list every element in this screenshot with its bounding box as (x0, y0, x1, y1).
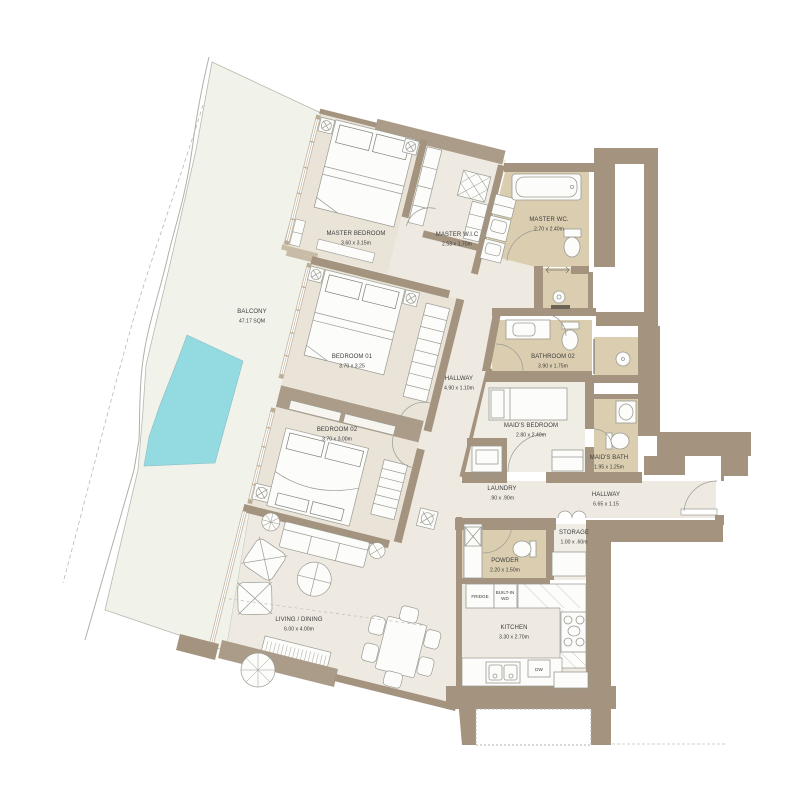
svg-text:3.60 x 3.15m: 3.60 x 3.15m (341, 241, 371, 247)
svg-text:BEDROOM 01: BEDROOM 01 (332, 354, 373, 360)
svg-text:HALLWAY: HALLWAY (445, 376, 473, 382)
svg-text:6.65 x 1.15: 6.65 x 1.15 (593, 502, 619, 508)
svg-text:POWDER: POWDER (491, 558, 519, 564)
svg-text:2.70 x 2.40m: 2.70 x 2.40m (534, 227, 564, 233)
svg-text:BATHROOM 02: BATHROOM 02 (531, 354, 575, 360)
svg-text:MASTER BEDROOM: MASTER BEDROOM (326, 231, 385, 237)
svg-text:LAUNDRY: LAUNDRY (487, 486, 516, 492)
svg-text:1.00 x .60m: 1.00 x .60m (560, 540, 587, 546)
svg-text:MASTER WC.: MASTER WC. (529, 217, 569, 223)
svg-text:2.20 x 1.50m: 2.20 x 1.50m (490, 568, 520, 574)
svg-text:BALCONY: BALCONY (237, 309, 266, 315)
svg-text:WD: WD (501, 596, 509, 601)
svg-text:MAID'S BEDROOM: MAID'S BEDROOM (504, 423, 558, 429)
svg-text:KITCHEN: KITCHEN (500, 625, 527, 631)
svg-text:HALLWAY: HALLWAY (592, 492, 620, 498)
svg-text:FRIDGE: FRIDGE (471, 594, 488, 599)
svg-text:BUILT-IN: BUILT-IN (496, 590, 515, 595)
svg-text:6.00 x 4.00m: 6.00 x 4.00m (284, 627, 314, 633)
svg-text:1.95 x 1.25m: 1.95 x 1.25m (594, 465, 624, 471)
svg-text:3.30 x 2.70m: 3.30 x 2.70m (499, 635, 529, 641)
svg-text:3.90 x 1.75m: 3.90 x 1.75m (538, 364, 568, 370)
svg-text:47.17 SQM: 47.17 SQM (239, 319, 265, 325)
svg-text:BEDROOM 02: BEDROOM 02 (317, 427, 358, 433)
svg-text:3.70 x 3.00m: 3.70 x 3.00m (322, 437, 352, 443)
svg-text:2.80 x 2.40m: 2.80 x 2.40m (516, 433, 546, 439)
svg-text:MAID'S BATH: MAID'S BATH (590, 455, 628, 461)
svg-text:3.70 x 3.25: 3.70 x 3.25 (339, 364, 365, 370)
svg-text:STORAGE: STORAGE (559, 530, 589, 536)
svg-text:DW: DW (535, 667, 543, 672)
svg-text:MASTER W.I.C: MASTER W.I.C (436, 232, 479, 238)
svg-text:2.53 x 1.70m: 2.53 x 1.70m (442, 242, 472, 248)
svg-text:4.90 x 1.10m: 4.90 x 1.10m (444, 386, 474, 392)
svg-text:LIVING / DINING: LIVING / DINING (275, 617, 322, 623)
svg-text:.90 x .90m: .90 x .90m (490, 496, 514, 502)
